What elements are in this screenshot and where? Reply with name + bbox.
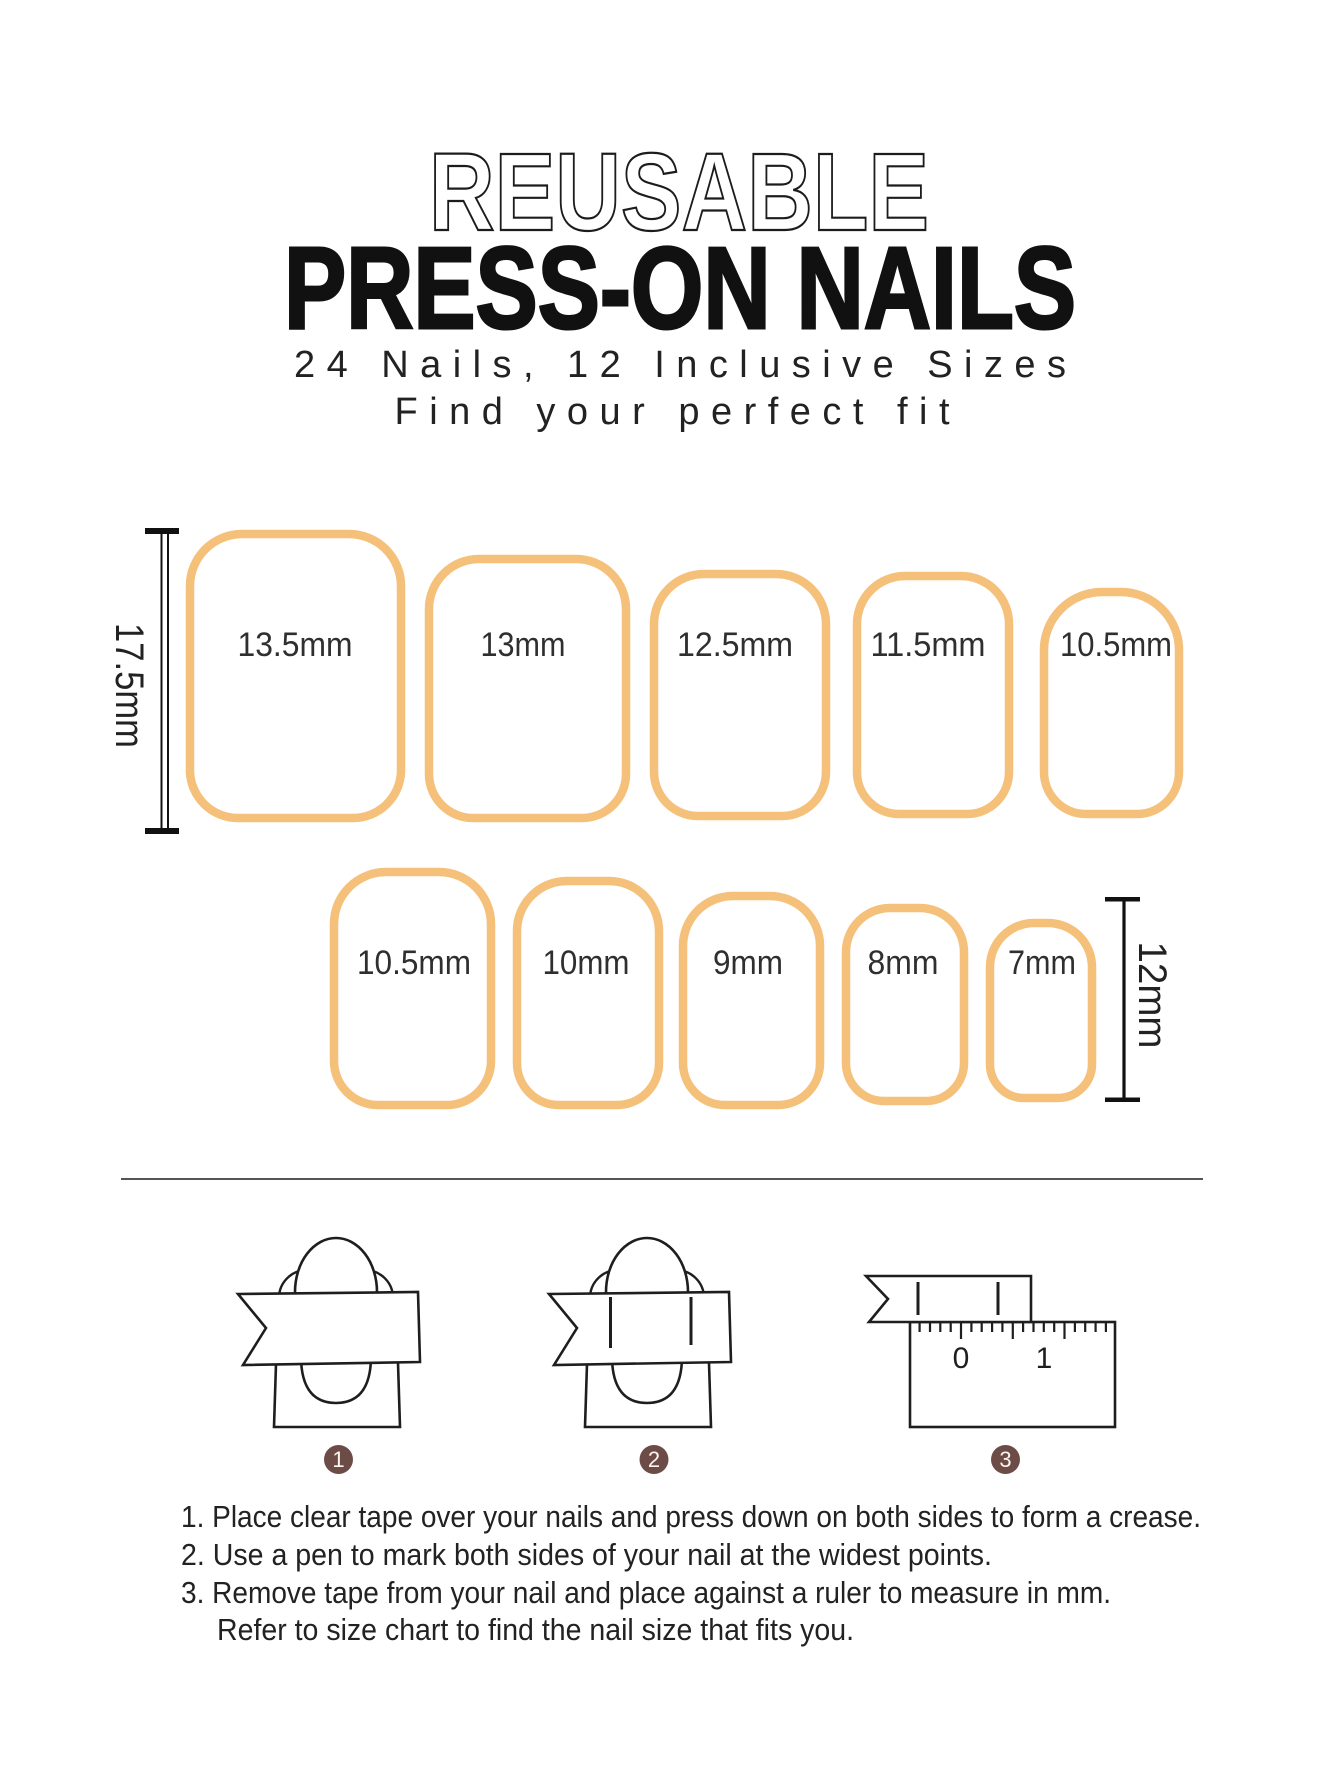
- svg-text:PRESS-ON NAILS: PRESS-ON NAILS: [284, 223, 1076, 353]
- svg-text:12mm: 12mm: [1130, 942, 1174, 1049]
- svg-text:13mm: 13mm: [481, 626, 566, 664]
- svg-text:11.5mm: 11.5mm: [871, 626, 986, 664]
- svg-text:2: 2: [648, 1447, 660, 1472]
- svg-text:Refer to size chart to find th: Refer to size chart to find the nail siz…: [217, 1612, 854, 1647]
- svg-text:7mm: 7mm: [1008, 944, 1076, 982]
- svg-text:9mm: 9mm: [713, 944, 783, 982]
- svg-text:1: 1: [1036, 1342, 1053, 1375]
- svg-text:2. Use a pen to mark both side: 2. Use a pen to mark both sides of your …: [181, 1537, 992, 1572]
- svg-text:Find your perfect fit: Find your perfect fit: [395, 391, 950, 433]
- svg-text:17.5mm: 17.5mm: [107, 623, 151, 748]
- svg-text:0: 0: [953, 1342, 970, 1375]
- svg-text:3: 3: [999, 1447, 1011, 1472]
- svg-text:10.5mm: 10.5mm: [1060, 626, 1172, 664]
- svg-text:13.5mm: 13.5mm: [238, 626, 353, 664]
- svg-text:1. Place clear tape over your: 1. Place clear tape over your nails and …: [181, 1499, 1201, 1534]
- svg-text:1: 1: [332, 1447, 344, 1472]
- svg-text:12.5mm: 12.5mm: [677, 626, 793, 664]
- svg-text:10mm: 10mm: [543, 944, 630, 982]
- svg-text:8mm: 8mm: [868, 944, 939, 982]
- svg-text:10.5mm: 10.5mm: [357, 944, 471, 982]
- svg-text:3. Remove tape from your nail: 3. Remove tape from your nail and place …: [181, 1575, 1111, 1610]
